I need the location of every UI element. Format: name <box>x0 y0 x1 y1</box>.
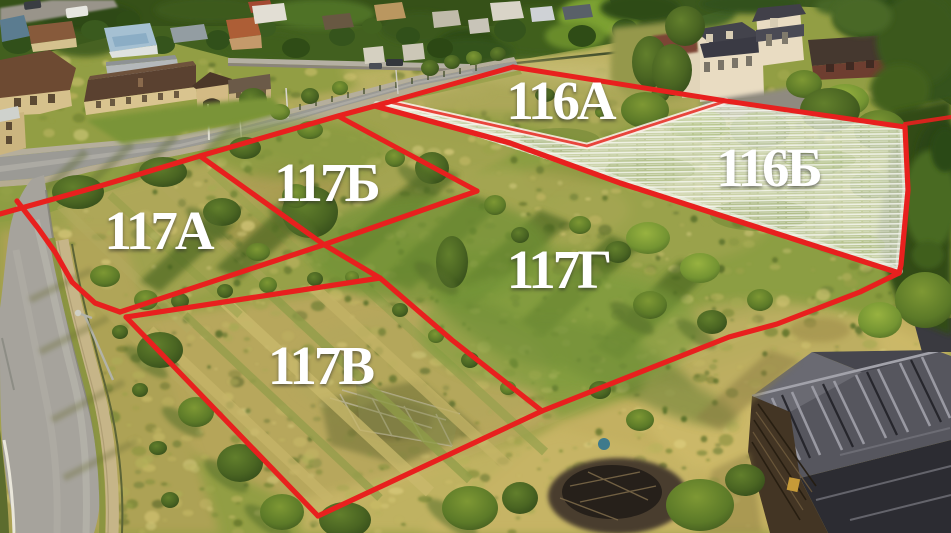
svg-text:116А: 116А <box>506 70 616 131</box>
svg-text:117Г: 117Г <box>507 239 610 300</box>
svg-text:116Б: 116Б <box>716 137 820 198</box>
svg-text:117А: 117А <box>104 200 214 261</box>
svg-text:117Б: 117Б <box>274 152 378 213</box>
svg-text:117В: 117В <box>268 335 374 396</box>
